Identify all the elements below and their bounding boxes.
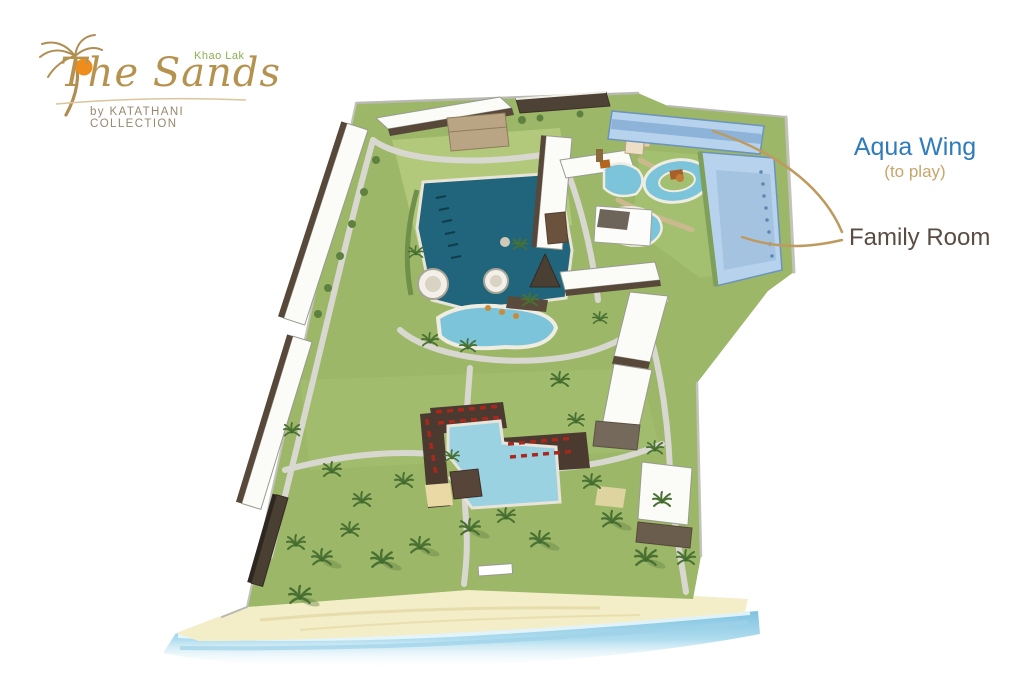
resort-site-plan — [0, 0, 1024, 683]
aqua-wing-label: Aqua Wing — [836, 133, 994, 162]
page: Khao Lak The Sands by KATATHANI COLLECTI… — [0, 0, 1024, 683]
aqua-wing-sublabel: (to play) — [836, 162, 994, 182]
family-room-label: Family Room — [849, 224, 990, 252]
beach-bench — [478, 564, 513, 576]
